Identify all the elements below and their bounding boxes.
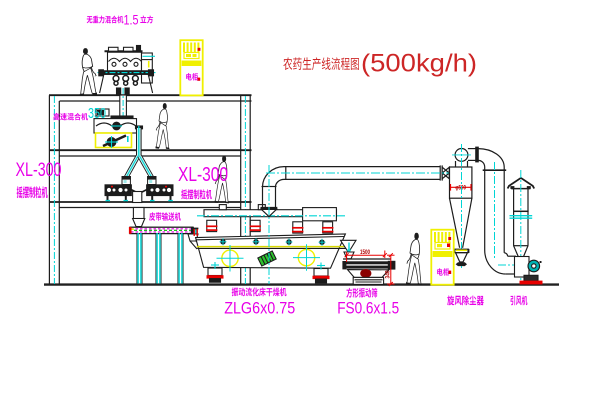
- svg-text:XL-300: XL-300: [16, 159, 62, 181]
- svg-text:1500: 1500: [360, 250, 370, 256]
- svg-text:350: 350: [88, 105, 106, 122]
- svg-text:FS0.6x1.5: FS0.6x1.5: [337, 298, 399, 317]
- svg-text:1.5: 1.5: [124, 13, 139, 28]
- svg-text:(500kg/h): (500kg/h): [361, 50, 477, 78]
- svg-text:XL-300: XL-300: [178, 164, 228, 186]
- svg-text:340: 340: [385, 270, 391, 279]
- svg-text:φ500: φ500: [455, 185, 466, 191]
- svg-text:ZLG6x0.75: ZLG6x0.75: [224, 298, 295, 317]
